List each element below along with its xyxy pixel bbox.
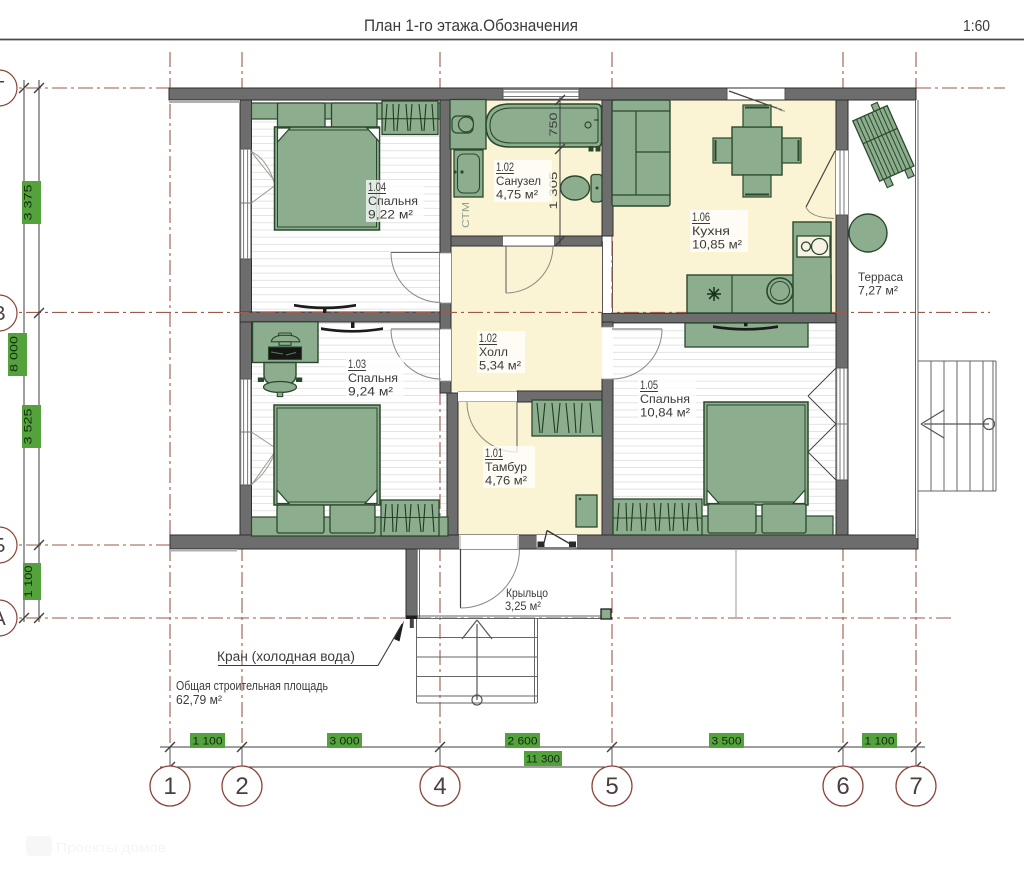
- svg-text:7,27 м²: 7,27 м²: [858, 284, 898, 298]
- svg-text:9,24 м²: 9,24 м²: [348, 385, 393, 399]
- svg-text:3 525: 3 525: [23, 409, 35, 445]
- svg-text:Спальня: Спальня: [368, 194, 418, 208]
- svg-text:2: 2: [235, 773, 248, 800]
- svg-text:5: 5: [605, 773, 618, 800]
- svg-text:1.01: 1.01: [485, 446, 503, 460]
- svg-text:Тамбур: Тамбур: [485, 460, 527, 474]
- svg-text:3 000: 3 000: [330, 736, 360, 748]
- svg-text:10,84 м²: 10,84 м²: [640, 406, 690, 420]
- svg-text:Проекты домов: Проекты домов: [56, 840, 166, 855]
- svg-text:4,75 м²: 4,75 м²: [496, 188, 538, 202]
- svg-text:11 300: 11 300: [526, 754, 560, 766]
- svg-text:4: 4: [433, 773, 446, 800]
- svg-text:Спальня: Спальня: [348, 371, 398, 385]
- svg-text:1.06: 1.06: [692, 210, 710, 224]
- svg-text:750: 750: [548, 113, 560, 137]
- svg-text:Кухня: Кухня: [692, 224, 730, 238]
- svg-text:9,22 м²: 9,22 м²: [368, 208, 413, 222]
- svg-text:1.05: 1.05: [640, 378, 658, 392]
- svg-text:4,76 м²: 4,76 м²: [485, 474, 527, 488]
- svg-text:Холл: Холл: [479, 345, 508, 359]
- svg-text:6: 6: [836, 773, 849, 800]
- svg-text:В: В: [0, 303, 6, 325]
- svg-text:3 375: 3 375: [23, 185, 35, 221]
- svg-text:Крыльцо: Крыльцо: [506, 586, 548, 600]
- svg-text:1.03: 1.03: [348, 357, 366, 371]
- svg-text:Санузел: Санузел: [496, 174, 541, 188]
- svg-text:1.02: 1.02: [479, 331, 497, 345]
- svg-text:10,85 м²: 10,85 м²: [692, 238, 742, 252]
- svg-text:1 100: 1 100: [193, 736, 223, 748]
- svg-text:3 500: 3 500: [712, 736, 742, 748]
- svg-text:СТМ: СТМ: [461, 202, 472, 228]
- svg-text:1:60: 1:60: [963, 18, 990, 35]
- svg-text:2 600: 2 600: [508, 736, 538, 748]
- svg-text:Кран (холодная вода): Кран (холодная вода): [217, 649, 355, 664]
- svg-text:1: 1: [163, 773, 176, 800]
- svg-text:Г: Г: [0, 78, 5, 100]
- svg-text:Общая строительная площадь: Общая строительная площадь: [176, 679, 328, 693]
- svg-text:3,25 м²: 3,25 м²: [505, 599, 541, 613]
- svg-text:А: А: [0, 608, 6, 630]
- svg-text:Терраса: Терраса: [858, 270, 903, 284]
- svg-text:Б: Б: [0, 535, 6, 557]
- svg-text:8 000: 8 000: [9, 336, 21, 372]
- svg-text:5,34 м²: 5,34 м²: [479, 359, 521, 373]
- svg-text:62,79 м²: 62,79 м²: [176, 693, 222, 707]
- svg-text:1.02: 1.02: [496, 160, 514, 174]
- svg-text:План 1-го этажа.Обозначения: План 1-го этажа.Обозначения: [364, 16, 578, 35]
- svg-text:1.04: 1.04: [368, 180, 386, 194]
- svg-text:Спальня: Спальня: [640, 392, 690, 406]
- svg-text:7: 7: [909, 773, 922, 800]
- svg-text:1 100: 1 100: [23, 566, 35, 598]
- svg-text:1 100: 1 100: [865, 736, 895, 748]
